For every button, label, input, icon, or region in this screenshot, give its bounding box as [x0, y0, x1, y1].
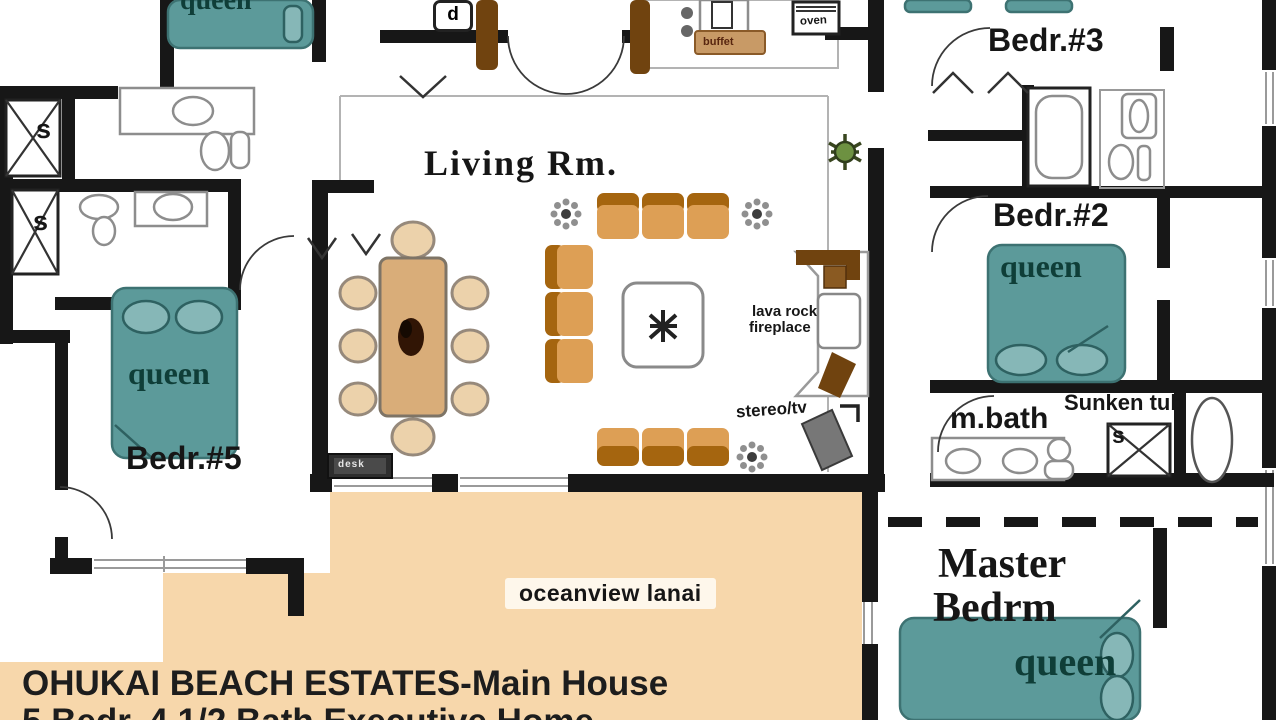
- toilet-icon: [1109, 145, 1133, 179]
- stereo-tv-icon: [802, 406, 858, 470]
- pillow: [1057, 345, 1107, 375]
- pillow: [176, 301, 222, 333]
- dryer-box: d: [433, 0, 473, 32]
- bed3-pillow: [1006, 0, 1072, 12]
- sunken-tub-label: Sunken tub: [1064, 390, 1184, 416]
- sink-icon: [946, 449, 980, 473]
- master-bath-label: m.bath: [950, 402, 1048, 436]
- pillow: [123, 301, 169, 333]
- bathtub-basin: [1036, 96, 1082, 178]
- sink-icon: [1130, 100, 1148, 132]
- shower-label-1: s: [36, 114, 51, 145]
- oceanview-lanai-label: oceanview lanai: [505, 578, 716, 609]
- queen-label-master: queen: [1014, 638, 1116, 685]
- bed3-pillow: [905, 0, 971, 12]
- sink-icon: [1003, 449, 1037, 473]
- pillow: [996, 345, 1046, 375]
- sunken-tub-icon: [1192, 398, 1232, 482]
- stool-icon: [681, 25, 693, 37]
- potted-plant-icon: [829, 134, 861, 170]
- toilet-tank: [231, 132, 249, 168]
- master-bedroom-label-line1: Master: [938, 540, 1066, 588]
- plan-title-line2: 5 Bedr. 4 1/2 Bath Executive Home: [22, 702, 594, 720]
- dryer-label: d: [447, 4, 459, 25]
- toilet-tank: [1138, 146, 1150, 180]
- queen-label-topleft: queen: [180, 0, 252, 17]
- toilet-icon: [1048, 439, 1070, 461]
- pillow: [284, 6, 302, 42]
- bedroom2-label: Bedr.#2: [993, 197, 1109, 234]
- fireplace-label-line1: lava rock: [752, 303, 817, 320]
- bedroom5-label: Bedr.#5: [126, 440, 242, 477]
- living-room-label: Living Rm.: [424, 142, 618, 184]
- toilet-icon: [80, 195, 118, 219]
- bedroom3-label: Bedr.#3: [988, 22, 1104, 59]
- floor-plan: Living Rm. Bedr.#3 Bedr.#2 Bedr.#5 Maste…: [0, 0, 1280, 720]
- shower-label-2: s: [33, 206, 48, 237]
- shower-label-3: s: [1112, 422, 1125, 449]
- bed3-bathroom: [1028, 88, 1164, 188]
- wood-post: [630, 0, 650, 74]
- buffet-label: buffet: [703, 36, 734, 48]
- sink-icon: [154, 194, 192, 220]
- queen-label-bedr5: queen: [128, 355, 210, 392]
- sink-icon: [712, 2, 732, 28]
- coffee-table: [623, 283, 703, 367]
- stool-icon: [681, 7, 693, 19]
- kitchen: [476, 0, 839, 74]
- dining-set: [340, 222, 488, 455]
- fireplace-label-line2: fireplace: [749, 319, 811, 336]
- oven-label: oven: [800, 14, 827, 27]
- wood-post: [476, 0, 498, 70]
- master-bedroom-label-line2: Bedrm: [933, 584, 1057, 632]
- queen-label-bedr2: queen: [1000, 248, 1082, 285]
- desk-label: desk: [338, 459, 365, 470]
- toilet-icon: [201, 132, 229, 170]
- toilet-bowl: [1045, 461, 1073, 479]
- plan-title-line1: OHUKAI BEACH ESTATES-Main House: [22, 664, 668, 704]
- sink-icon: [173, 97, 213, 125]
- toilet-bowl: [93, 217, 115, 245]
